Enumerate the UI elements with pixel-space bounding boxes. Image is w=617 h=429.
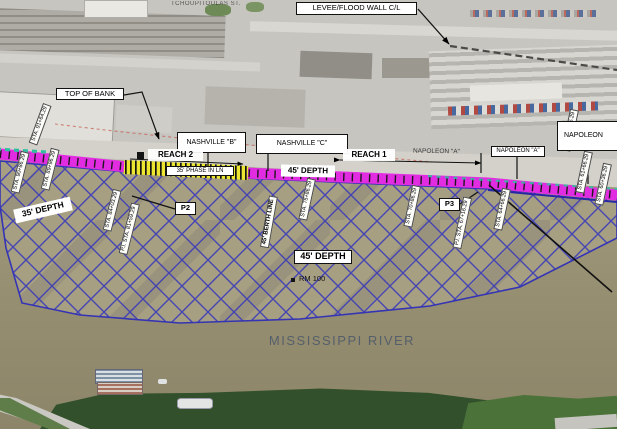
reach2-label: REACH 2 bbox=[148, 149, 203, 161]
depth-45-river-label: 45' DEPTH bbox=[294, 250, 352, 264]
phase-in-label: 35' PHASE IN LN bbox=[166, 166, 234, 176]
levee-label-leader bbox=[418, 9, 449, 44]
p3-label: P3 bbox=[439, 198, 460, 211]
nashville-c-box: NASHVILLE "C" bbox=[256, 134, 348, 154]
reach2-marker bbox=[137, 152, 144, 159]
overlay-graphics bbox=[0, 0, 617, 429]
napoleon-a-box: NAPOLEON "A" bbox=[491, 146, 545, 157]
napoleon-b-box: NAPOLEON bbox=[557, 121, 617, 151]
river-name-label: MISSISSIPPI RIVER bbox=[262, 333, 422, 349]
napoleon-a-text: NAPOLEON "A" bbox=[413, 147, 460, 158]
top-of-bank-leader bbox=[124, 92, 159, 139]
river-mile-label: RM 100 bbox=[299, 274, 325, 284]
p2-label: P2 bbox=[175, 202, 196, 215]
levee-flood-wall-label: LEVEE/FLOOD WALL C/L bbox=[296, 2, 417, 15]
reach1-label: REACH 1 bbox=[343, 149, 395, 161]
river-mile-marker bbox=[291, 278, 295, 282]
harbor-dredging-plan-map: TCHOUPITOULAS ST. LEVEE/FLOOD WALL C/L T… bbox=[0, 0, 617, 429]
top-of-bank-label: TOP OF BANK bbox=[56, 88, 124, 100]
depth-45-wharf-label: 45' DEPTH bbox=[281, 165, 335, 178]
levee-wall-dashed-line bbox=[450, 46, 617, 70]
street-name-label: TCHOUPITOULAS ST. bbox=[171, 0, 241, 8]
